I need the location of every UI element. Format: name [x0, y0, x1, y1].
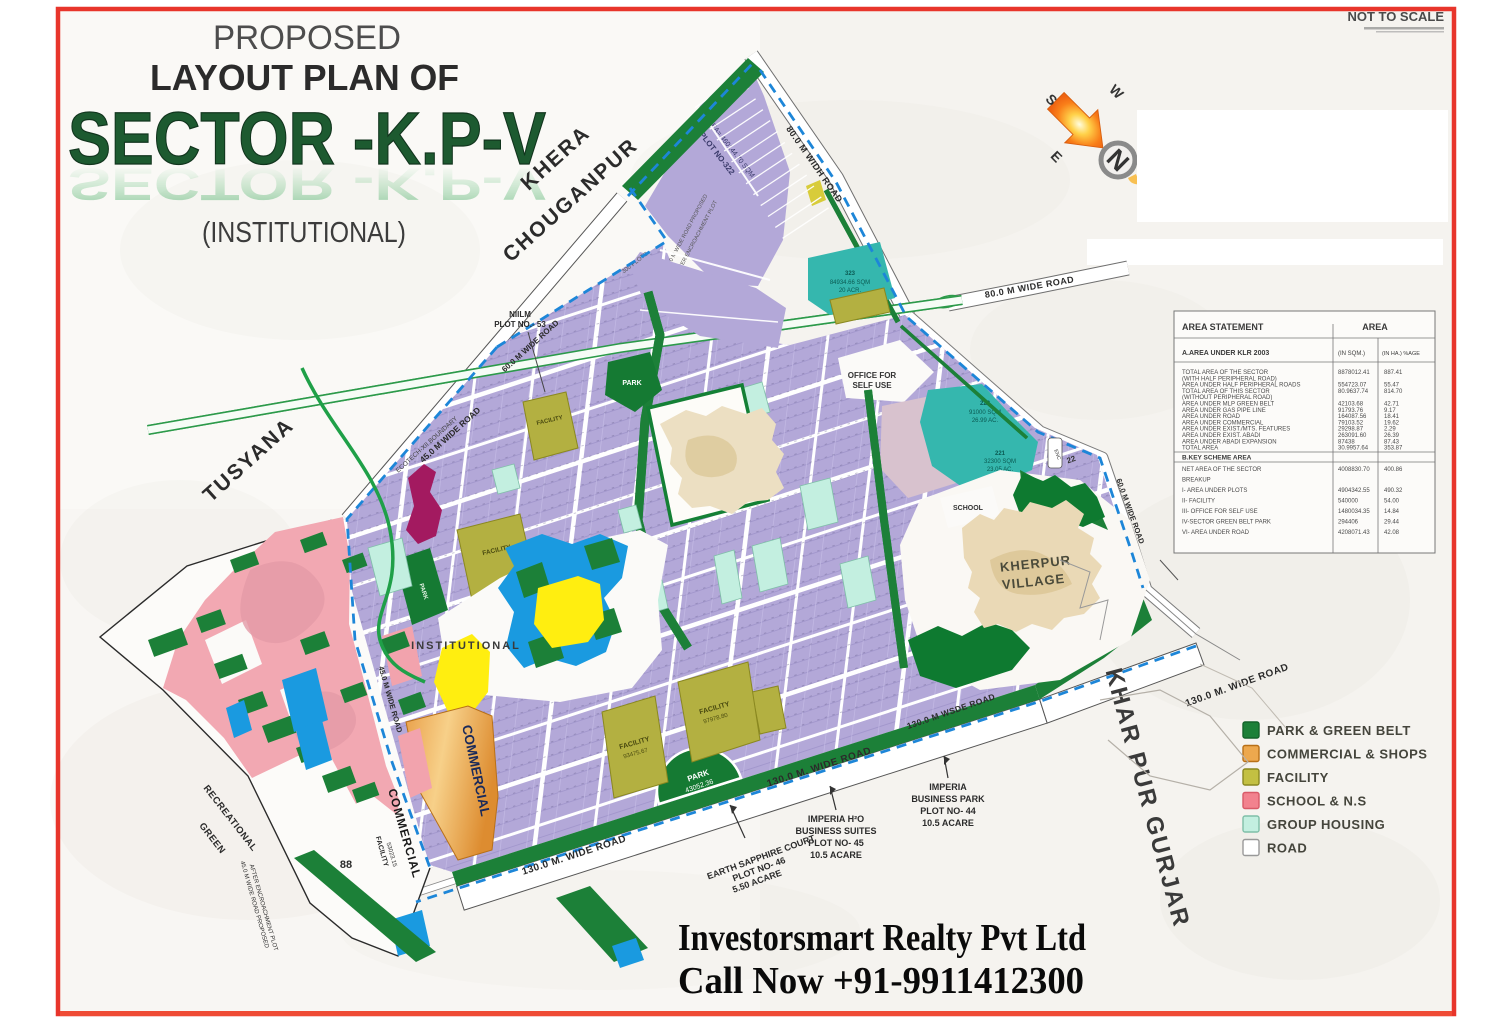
svg-text:554723.07: 554723.07	[1338, 383, 1367, 389]
svg-text:353.87: 353.87	[1384, 446, 1403, 452]
svg-text:10.5 ACARE: 10.5 ACARE	[922, 818, 974, 828]
svg-text:OFFICE FOR: OFFICE FOR	[848, 371, 897, 380]
svg-text:4208071.43: 4208071.43	[1338, 530, 1370, 536]
svg-text:79103.52: 79103.52	[1338, 420, 1364, 426]
svg-text:AREA: AREA	[1362, 322, 1388, 332]
svg-text:AREA UNDER ROAD: AREA UNDER ROAD	[1182, 414, 1241, 420]
svg-text:AREA STATEMENT: AREA STATEMENT	[1182, 322, 1264, 332]
svg-text:AREA UNDER EXIST./MTS. FEATURE: AREA UNDER EXIST./MTS. FEATURES	[1182, 427, 1290, 433]
svg-text:I- AREA UNDER PLOTS: I- AREA UNDER PLOTS	[1182, 488, 1247, 494]
svg-text:164087.56: 164087.56	[1338, 414, 1367, 420]
svg-text:Call Now +91-9911412300: Call Now +91-9911412300	[678, 960, 1084, 1002]
svg-text:VI- AREA UNDER ROAD: VI- AREA UNDER ROAD	[1182, 530, 1250, 536]
svg-text:32300 SQM: 32300 SQM	[984, 459, 1016, 465]
svg-text:26.39: 26.39	[1384, 433, 1400, 439]
svg-text:A.AREA UNDER KLR 2003: A.AREA UNDER KLR 2003	[1182, 350, 1269, 357]
svg-text:TOTAL AREA OF THIS SECTOR: TOTAL AREA OF THIS SECTOR	[1182, 389, 1270, 395]
svg-text:FACILITY: FACILITY	[1267, 770, 1329, 785]
svg-text:323: 323	[845, 271, 856, 277]
svg-text:NET AREA OF THE SECTOR: NET AREA OF THE SECTOR	[1182, 467, 1262, 473]
svg-text:PLOT NO- 44: PLOT NO- 44	[920, 806, 976, 816]
svg-text:NIILM: NIILM	[509, 310, 531, 319]
svg-text:(WITHOUT PERIPHERAL ROAD): (WITHOUT PERIPHERAL ROAD)	[1182, 395, 1272, 401]
svg-text:88: 88	[340, 859, 352, 871]
svg-text:AREA UNDER COMMERCIAL: AREA UNDER COMMERCIAL	[1182, 420, 1264, 426]
svg-text:(INSTITUTIONAL): (INSTITUTIONAL)	[202, 217, 406, 249]
svg-text:29.44: 29.44	[1384, 520, 1400, 526]
svg-text:263091.60: 263091.60	[1338, 433, 1367, 439]
svg-text:54.00: 54.00	[1384, 499, 1400, 505]
svg-text:55.47: 55.47	[1384, 383, 1400, 389]
svg-text:91793.76: 91793.76	[1338, 408, 1364, 414]
svg-text:26.99 AC.: 26.99 AC.	[972, 418, 999, 424]
svg-text:PLOT NO- 45: PLOT NO- 45	[808, 838, 864, 848]
svg-text:(WITH HALF PERIPHERAL ROAD): (WITH HALF PERIPHERAL ROAD)	[1182, 376, 1277, 382]
svg-text:B.KEY SCHEME AREA: B.KEY SCHEME AREA	[1182, 455, 1252, 462]
svg-text:INSTITUTIONAL: INSTITUTIONAL	[411, 640, 521, 652]
svg-text:(IN HA.) %AGE: (IN HA.) %AGE	[1382, 351, 1420, 357]
svg-text:(IN SQM.): (IN SQM.)	[1338, 351, 1365, 357]
svg-text:BUSINESS SUITES: BUSINESS SUITES	[795, 826, 876, 836]
svg-text:AREA UNDER HALF PERIPHERAL ROA: AREA UNDER HALF PERIPHERAL ROADS	[1182, 383, 1300, 389]
svg-text:221: 221	[995, 451, 1006, 457]
svg-text:II- FACILITY: II- FACILITY	[1182, 499, 1215, 505]
svg-text:9.17: 9.17	[1384, 408, 1396, 414]
svg-text:AREA UNDER ABADI EXPANSION: AREA UNDER ABADI EXPANSION	[1182, 439, 1277, 445]
svg-text:87.43: 87.43	[1384, 439, 1400, 445]
svg-text:TOTAL AREA: TOTAL AREA	[1182, 446, 1218, 452]
svg-text:4008830.70: 4008830.70	[1338, 467, 1370, 473]
svg-text:80.9637.74: 80.9637.74	[1338, 389, 1369, 395]
svg-text:GROUP HOUSING: GROUP HOUSING	[1267, 817, 1385, 832]
svg-text:IMPERIA H²O: IMPERIA H²O	[808, 814, 864, 824]
svg-text:29298.87: 29298.87	[1338, 427, 1364, 433]
svg-text:SCHOOL: SCHOOL	[953, 505, 984, 512]
svg-text:IMPERIA: IMPERIA	[929, 782, 967, 792]
svg-text:TOTAL AREA OF THE SECTOR: TOTAL AREA OF THE SECTOR	[1182, 370, 1269, 376]
svg-text:294406: 294406	[1338, 520, 1359, 526]
svg-text:814.70: 814.70	[1384, 389, 1403, 395]
svg-text:ROAD: ROAD	[1267, 841, 1307, 856]
svg-text:19.62: 19.62	[1384, 420, 1400, 426]
svg-text:LAYOUT PLAN OF: LAYOUT PLAN OF	[150, 57, 459, 98]
svg-text:42.08: 42.08	[1384, 530, 1400, 536]
svg-text:COMMERCIAL & SHOPS: COMMERCIAL & SHOPS	[1267, 747, 1427, 762]
svg-text:14.84: 14.84	[1384, 509, 1400, 515]
svg-text:42103.68: 42103.68	[1338, 402, 1364, 408]
svg-text:SECTOR -K.P-V: SECTOR -K.P-V	[68, 158, 546, 209]
svg-text:AREA UNDER GAS PIPE LINE: AREA UNDER GAS PIPE LINE	[1182, 408, 1266, 414]
svg-text:540000: 540000	[1338, 499, 1359, 505]
svg-text:BREAKUP: BREAKUP	[1182, 478, 1211, 484]
svg-text:BUSINESS PARK: BUSINESS PARK	[911, 794, 985, 804]
svg-text:84934.66 SQM: 84934.66 SQM	[830, 280, 870, 286]
svg-text:400.86: 400.86	[1384, 467, 1403, 473]
svg-text:AREA UNDER MLP GREEN BELT: AREA UNDER MLP GREEN BELT	[1182, 402, 1274, 408]
svg-text:887.41: 887.41	[1384, 370, 1403, 376]
svg-text:PLOT NO.- 53: PLOT NO.- 53	[494, 320, 546, 329]
svg-text:IV-SECTOR GREEN BELT PARK: IV-SECTOR GREEN BELT PARK	[1182, 520, 1271, 526]
svg-text:87438: 87438	[1338, 439, 1355, 445]
svg-text:1480034.35: 1480034.35	[1338, 509, 1370, 515]
svg-text:4904342.55: 4904342.55	[1338, 488, 1370, 494]
svg-text:Investorsmart Realty Pvt Ltd: Investorsmart Realty Pvt Ltd	[678, 917, 1086, 959]
svg-text:490.32: 490.32	[1384, 488, 1403, 494]
svg-text:SCHOOL & N.S: SCHOOL & N.S	[1267, 794, 1367, 809]
svg-text:10.5 ACARE: 10.5 ACARE	[810, 850, 862, 860]
svg-text:PARK & GREEN BELT: PARK & GREEN BELT	[1267, 723, 1411, 738]
svg-text:SELF USE: SELF USE	[852, 381, 892, 390]
svg-text:III- OFFICE FOR SELF USE: III- OFFICE FOR SELF USE	[1182, 509, 1258, 515]
svg-text:30.9957.64: 30.9957.64	[1338, 446, 1369, 452]
svg-text:20 ACR.: 20 ACR.	[839, 288, 862, 294]
svg-text:PARK: PARK	[622, 380, 641, 387]
svg-text:18.41: 18.41	[1384, 414, 1400, 420]
svg-text:8878012.41: 8878012.41	[1338, 370, 1370, 376]
svg-text:42.71: 42.71	[1384, 402, 1400, 408]
svg-text:AREA UNDER EXIST. ABADI: AREA UNDER EXIST. ABADI	[1182, 433, 1261, 439]
svg-text:PROPOSED: PROPOSED	[213, 19, 401, 57]
svg-text:2.29: 2.29	[1384, 427, 1396, 433]
